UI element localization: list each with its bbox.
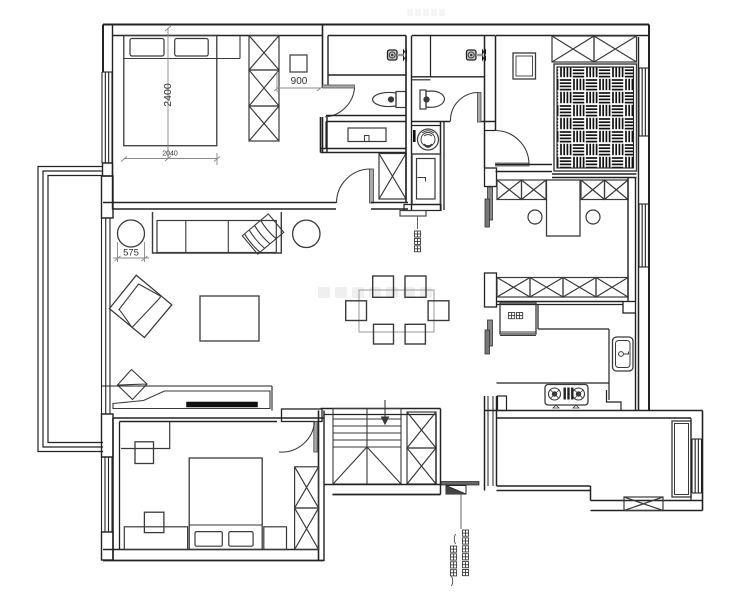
svg-text:900: 900: [291, 76, 308, 87]
svg-text:2400: 2400: [162, 83, 174, 107]
svg-text:2040: 2040: [162, 151, 178, 158]
svg-text:575: 575: [123, 248, 139, 259]
